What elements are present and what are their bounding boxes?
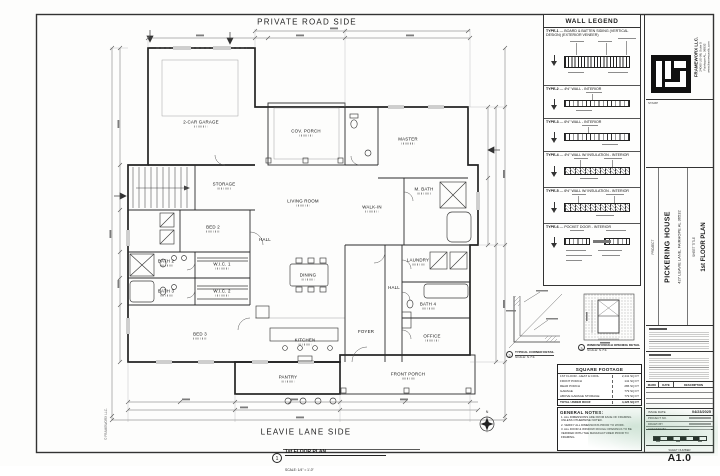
room-label-garage: 2-CAR GARAGE	[183, 121, 219, 128]
wall-legend-type-5: TYPE-5 — 6½" WALL W/ INSULATION - INTERI…	[544, 188, 640, 224]
room-label-wic-1: W.I.C. 1	[213, 263, 230, 270]
room-label-dining: DINING	[300, 274, 317, 281]
project-name: PICKERING HOUSE	[665, 211, 672, 283]
wall-legend-type-4: TYPE-4 — 4½" WALL W/ INSULATION - INTERI…	[544, 152, 640, 188]
square-footage-table: SQUARE FOOTAGE 1ST FLOOR - HEAT & COOL2,…	[557, 364, 642, 406]
edge-plot-stamp: © FRAMEWORX LLC.	[104, 408, 108, 440]
drawing-sheet: PRIVATE ROAD SIDE LEAVIE LANE SIDE 2-CAR…	[0, 0, 720, 466]
table-total-row: TOTAL UNDER ROOF4,426 SQ FT	[558, 399, 641, 405]
wall-tag-icon	[551, 208, 557, 213]
room-label-storage: STORAGE	[213, 183, 236, 190]
sf-label: GARAGE	[558, 390, 612, 393]
project-label: PROJECT	[651, 239, 655, 254]
room-label-master: MASTER	[398, 138, 418, 145]
room-label-office: OFFICE	[423, 335, 440, 342]
wall-tag-icon	[551, 243, 557, 248]
sf-value: 2,441 SQ FT	[612, 375, 641, 378]
issue-date-value: 04/23/2025	[692, 410, 711, 414]
corner-detail-caption: 2 TYPICAL CORNER DETAILSCALE: N.T.S.	[506, 351, 570, 359]
room-label-cov-porch: COV. PORCH	[291, 130, 320, 137]
notes-paragraph-2	[646, 352, 713, 382]
detail-number-bubble: 3	[578, 344, 585, 351]
field-label: DRAWN BY	[648, 422, 663, 426]
room-label-kitchen: KITCHEN	[295, 339, 316, 346]
sf-value: 779 SQ FT	[612, 395, 641, 398]
wall-tag-icon	[551, 61, 557, 66]
callout-number-bubble: 1	[272, 453, 282, 463]
room-label-wic-2: W.I.C. 2	[213, 290, 230, 297]
private-road-side-label: PRIVATE ROAD SIDE	[257, 18, 357, 27]
room-label-bath-2: BATH 2	[158, 260, 174, 267]
revisions-col-mark: MARK	[646, 382, 659, 387]
room-label-walk-in: WALK-IN	[362, 206, 382, 213]
square-footage-title: SQUARE FOOTAGE	[558, 365, 641, 374]
title-block: FRAMEWORX LLC. 24060 US-98, Suite 5 Fair…	[646, 15, 713, 452]
floor-plan-callout: 1 1st FLOOR PLAN SCALE: 1/4" = 1'-0"	[272, 440, 386, 476]
window-detail-caption: 3 WINDOW ROUGH OPENING DETAILSCALE: N.T.…	[578, 344, 642, 352]
revisions-col-date: DATE	[659, 382, 674, 387]
sf-label: REAR PORCH	[558, 385, 612, 388]
callout-title: 1st FLOOR PLAN	[285, 449, 386, 456]
company-info: FRAMEWORX LLC. 24060 US-98, Suite 5 Fair…	[694, 37, 711, 77]
detail-scale: SCALE: N.T.S.	[515, 356, 554, 360]
detail-number-bubble: 2	[506, 351, 513, 358]
fields-section: PROJECT NO. DRAWN BY CHECKED BY	[646, 416, 713, 430]
room-label-hall-1: HALL	[259, 238, 271, 242]
wall-tag-icon	[551, 105, 557, 110]
sf-value: 779 SQ FT	[612, 390, 641, 393]
room-label-bath-3: BATH 3	[158, 290, 174, 297]
wall-legend-type-2: TYPE-2 — 4½" WALL - INTERIOR	[544, 86, 640, 119]
sf-value: 141 SQ FT	[612, 380, 641, 383]
frameworx-logo	[651, 55, 691, 93]
north-arrow-icon	[480, 416, 494, 433]
sf-label: FRONT PORCH	[558, 380, 612, 383]
wall-legend-type-1: TYPE-1 — BOARD & BATTEN SIDING (VERTICAL…	[544, 28, 640, 86]
detail-scale: SCALE: N.T.S.	[587, 349, 640, 353]
room-label-living-room: LIVING ROOM	[287, 200, 318, 207]
sf-value: 286 SQ FT	[612, 385, 641, 388]
room-label-m-bath: M. BATH	[415, 188, 434, 195]
callout-scale: SCALE: 1/4" = 1'-0"	[285, 468, 314, 472]
room-label-foyer: FOYER	[358, 330, 374, 334]
leavie-lane-side-label: LEAVIE LANE SIDE	[261, 428, 352, 437]
notes-paragraph-1	[646, 326, 713, 352]
wall-legend: WALL LEGEND TYPE-1 — BOARD & BATTEN SIDI…	[543, 14, 641, 286]
wall-tag-icon	[551, 172, 557, 177]
stamp-section: STAMP	[646, 100, 713, 168]
field-label: PROJECT NO.	[648, 416, 667, 420]
room-label-front-porch: FRONT PORCH	[391, 373, 425, 380]
room-label-bed-3: BED 3	[193, 333, 207, 340]
wall-legend-type-6: TYPE-6 — POCKET DOOR - INTERIOR	[544, 224, 640, 273]
wall-legend-type-3: TYPE-3 — 6½" WALL - INTERIOR	[544, 119, 640, 152]
sf-label: ABOVE GARAGE STORAGE	[558, 395, 612, 398]
sheet-number-section: SHEET NUMBER A1.0	[646, 446, 713, 468]
room-label-bed-2: BED 2	[206, 226, 220, 233]
revision-row	[646, 404, 713, 408]
north-label: N	[486, 410, 489, 414]
general-note: 1. ALL DIMENSIONS ARE FROM FACE OF FRAMI…	[558, 416, 641, 423]
room-label-pantry: PANTRY	[279, 376, 298, 383]
sheet-title-label: SHEET TITLE	[692, 236, 696, 256]
project-section: PROJECT PICKERING HOUSE 427 LEAVIE LANE,…	[646, 168, 713, 326]
wall-legend-title: WALL LEGEND	[544, 15, 640, 28]
revisions-table: MARK DATE DESCRIPTION	[646, 382, 713, 409]
issue-date-row: ISSUE DATE 04/23/2025	[646, 409, 713, 416]
company-section: FRAMEWORX LLC. 24060 US-98, Suite 5 Fair…	[646, 15, 713, 100]
sf-value: 4,426 SQ FT	[612, 401, 641, 404]
room-label-bath-4: BATH 4	[420, 303, 436, 310]
type-1-desc: BOARD & BATTEN SIDING (VERTICAL DESIGN) …	[546, 29, 628, 37]
sf-label: 1ST FLOOR - HEAT & COOL	[558, 375, 612, 378]
project-address: 427 LEAVIE LANE, FAIRHOPE AL 36532	[677, 210, 682, 283]
graphic-scale-section	[646, 430, 713, 446]
general-notes: GENERAL NOTES: 1. ALL DIMENSIONS ARE FRO…	[557, 407, 642, 451]
room-label-hall-2: HALL	[388, 286, 400, 290]
wall-tag-icon	[551, 138, 557, 143]
issue-date-label: ISSUE DATE	[648, 410, 666, 414]
sheet-title: 1st FLOOR PLAN	[701, 222, 707, 271]
sheet-number: A1.0	[646, 452, 713, 464]
room-label-laundry: LAUNDRY	[407, 259, 429, 266]
company-website: www.frameworxllc.com	[707, 37, 711, 77]
general-note: 3. ALL DOOR & WINDOW ROUGH OPENINGS TO B…	[558, 428, 641, 439]
sf-label: TOTAL UNDER ROOF	[558, 401, 612, 404]
stamp-label: STAMP	[646, 100, 713, 106]
revisions-col-description: DESCRIPTION	[674, 382, 713, 387]
